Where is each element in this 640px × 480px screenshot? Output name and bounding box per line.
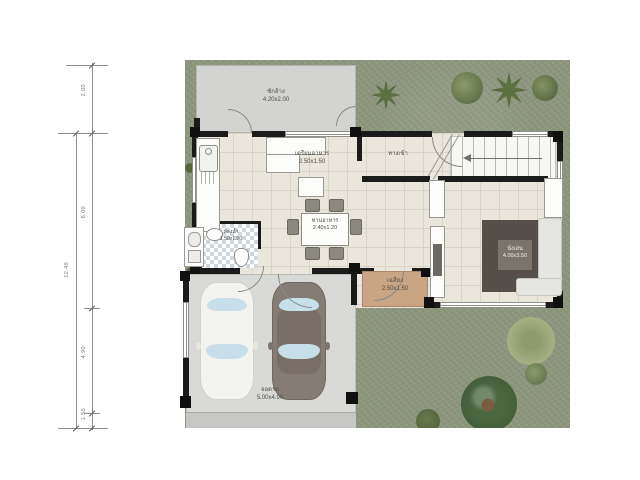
car-mirror <box>325 342 330 350</box>
column <box>350 127 361 137</box>
car-mirror <box>253 342 258 350</box>
kitchen-island <box>298 177 324 197</box>
dimension-tick <box>58 428 108 429</box>
big-tree-icon <box>461 376 517 428</box>
bush-tree-icon <box>451 72 483 104</box>
room-name: ทานอาหาร <box>302 218 348 225</box>
wall-segment <box>183 358 189 398</box>
bush-tree-icon <box>525 363 547 385</box>
room-size: 2.40x1.20 <box>302 225 348 232</box>
column <box>553 131 563 142</box>
wall-segment <box>351 274 357 305</box>
outdoor-fixture <box>188 232 201 247</box>
laundry-label: ซักล้าง 4.20x2.00 <box>236 88 316 104</box>
wall-segment <box>362 176 430 182</box>
entry-label: ทางเข้า <box>368 150 428 158</box>
wall-segment <box>357 133 362 161</box>
wall-segment <box>356 131 432 137</box>
column <box>349 263 360 274</box>
column <box>346 392 358 404</box>
kitchen-label: เตรียมอาหาร 2.50x1.50 <box>272 150 352 166</box>
car-rear-window <box>207 298 247 311</box>
hall-cabinet <box>429 180 445 218</box>
room-name: ห้องน้ำ <box>204 229 258 236</box>
floor-plan: ซักล้าง 4.20x2.00 เตรียมอาหาร 2.50x1.50 … <box>0 0 640 480</box>
carpark-label: จอดรถ 5.00x4.90 <box>240 386 300 402</box>
dimension-tick <box>58 133 108 134</box>
room-size: 1.50x1.90 <box>204 236 258 243</box>
dimension-line-outer <box>76 133 77 428</box>
column <box>421 268 430 277</box>
dining-chair <box>287 219 299 235</box>
dining-chair <box>305 199 320 212</box>
stair-direction-arrow <box>470 158 542 159</box>
dining-chair <box>350 219 362 235</box>
dimension-value: 2.00 <box>81 84 87 96</box>
room-size: 4.00x3.50 <box>498 253 532 260</box>
room-size: 4.20x2.00 <box>236 96 316 104</box>
car-windshield <box>206 344 248 359</box>
side-cabinet <box>544 178 563 218</box>
sofa <box>538 218 562 280</box>
column <box>424 297 434 308</box>
car-roof <box>277 308 321 374</box>
window <box>440 302 546 308</box>
white-car <box>200 282 254 400</box>
kitchen-faucet-icon <box>205 148 212 155</box>
bush-tree-icon <box>416 409 440 428</box>
sofa-chaise <box>516 278 562 296</box>
outdoor-fixture <box>188 250 201 263</box>
dining-label: ทานอาหาร 2.40x1.20 <box>302 218 348 233</box>
porch-label: เฉลียง 2.50x1.50 <box>363 277 427 293</box>
dimension-tick <box>66 65 108 66</box>
room-name: ซักล้าง <box>236 88 316 96</box>
garage-edge-line <box>186 412 356 413</box>
tv-icon <box>433 244 442 276</box>
living-label: นั่งเล่น 4.00x3.50 <box>498 246 532 261</box>
bathroom-label: ห้องน้ำ 1.50x1.90 <box>204 229 258 243</box>
dining-chair <box>329 199 344 212</box>
room-name: เฉลียง <box>363 277 427 285</box>
room-name: จอดรถ <box>240 386 300 394</box>
dimension-total: 12.40 <box>64 262 70 278</box>
dimension-line-inner <box>92 63 93 430</box>
column <box>180 396 191 408</box>
palm-tree-icon <box>371 80 401 110</box>
column <box>190 127 200 137</box>
window <box>512 131 548 137</box>
room-size: 2.50x1.50 <box>363 285 427 293</box>
wall-segment <box>464 131 512 137</box>
car-windshield <box>278 344 320 359</box>
dimension-value: 1.50 <box>81 408 87 420</box>
kitchen-sink-lines <box>201 172 214 184</box>
stair-arrowhead-icon <box>463 154 471 162</box>
room-size: 5.00x4.90 <box>240 394 300 402</box>
wall-segment <box>438 176 548 182</box>
window <box>183 302 189 358</box>
column <box>180 271 190 281</box>
dimension-value: 6.00 <box>81 206 87 218</box>
dining-chair <box>305 247 320 260</box>
room-name: ทางเข้า <box>368 150 428 158</box>
room-name: นั่งเล่น <box>498 246 532 253</box>
dining-chair <box>329 247 344 260</box>
driveway <box>186 413 356 428</box>
car-mirror <box>196 342 201 350</box>
car-mirror <box>268 342 273 350</box>
bush-tree-icon <box>532 75 558 101</box>
column <box>553 297 563 308</box>
palm-tree-icon <box>491 72 527 108</box>
room-name: เตรียมอาหาร <box>272 150 352 158</box>
room-size: 2.50x1.50 <box>272 158 352 166</box>
round-tree-icon <box>507 317 555 365</box>
dimension-value: 4.90 <box>81 346 87 358</box>
